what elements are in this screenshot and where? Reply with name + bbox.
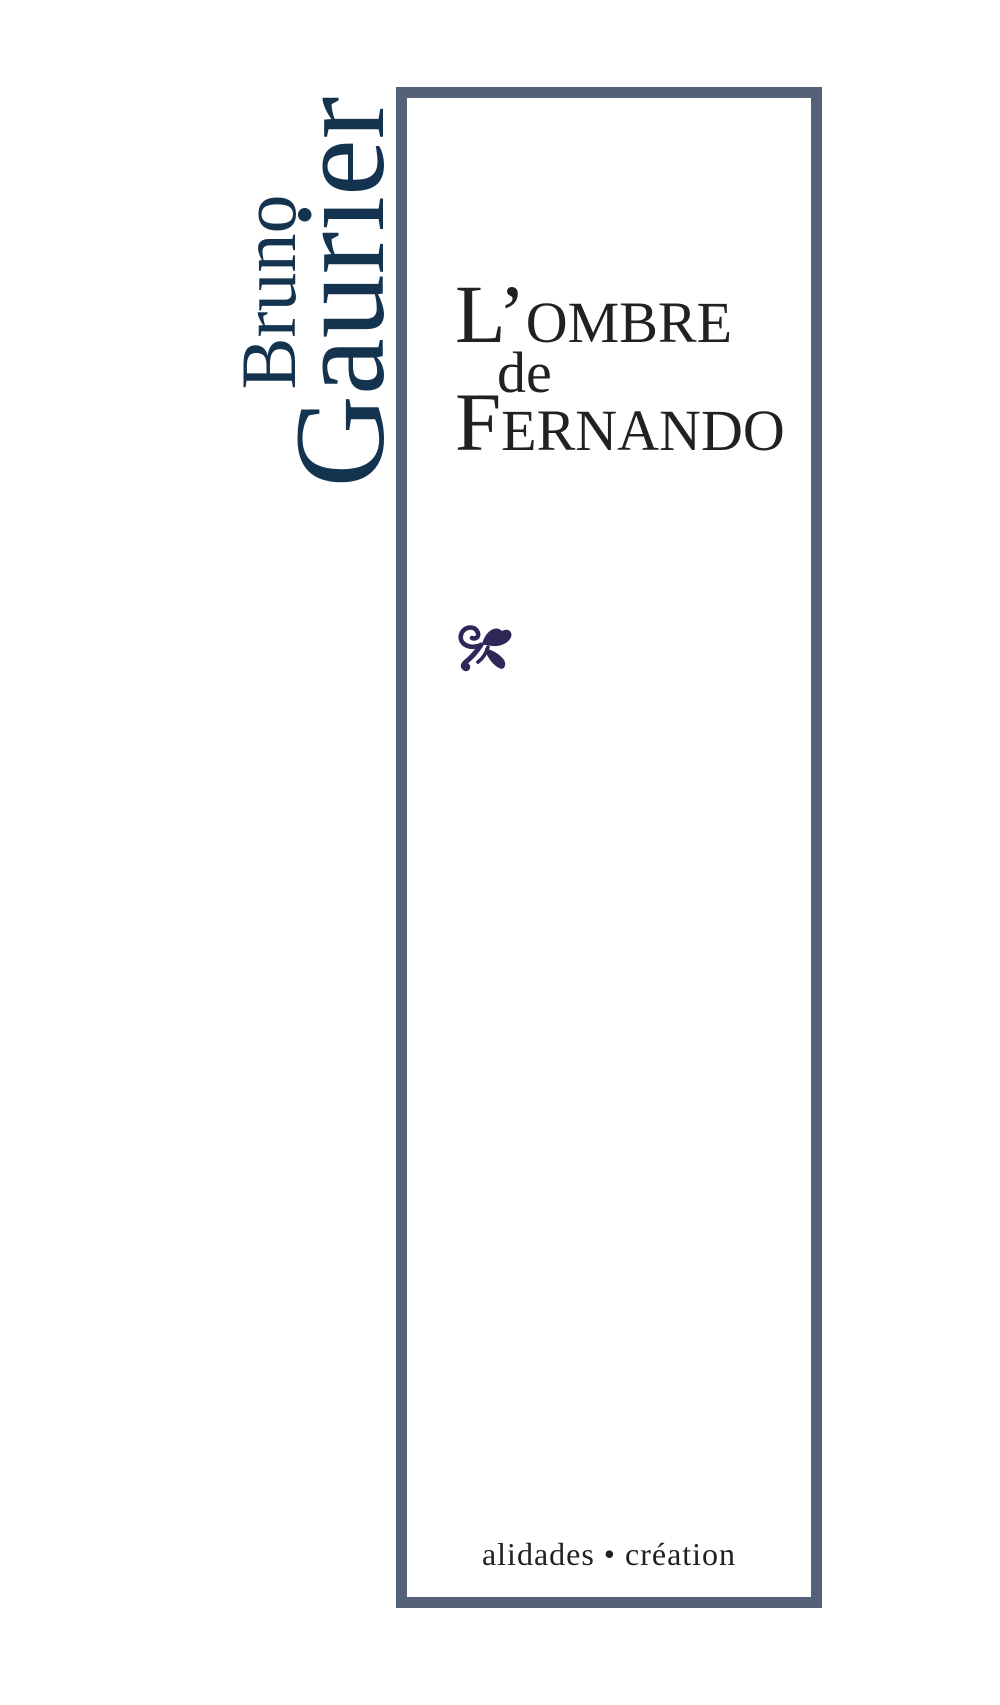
publisher-imprint: alidades • création: [407, 1538, 811, 1570]
fleuron-ornament-icon: [452, 622, 514, 674]
title-line-3-small-caps: ERNANDO: [501, 398, 785, 463]
title-line-1-small-caps: OMBRE: [526, 290, 732, 355]
author-name: Bruno Gaurier: [240, 92, 382, 492]
book-cover: Bruno Gaurier L’OMBRE de FERNANDO alidad…: [0, 0, 1000, 1705]
author-last-name: Gaurier: [299, 92, 382, 492]
title-line-3-initial: F: [455, 376, 501, 468]
title-line-3: FERNANDO: [455, 381, 785, 464]
